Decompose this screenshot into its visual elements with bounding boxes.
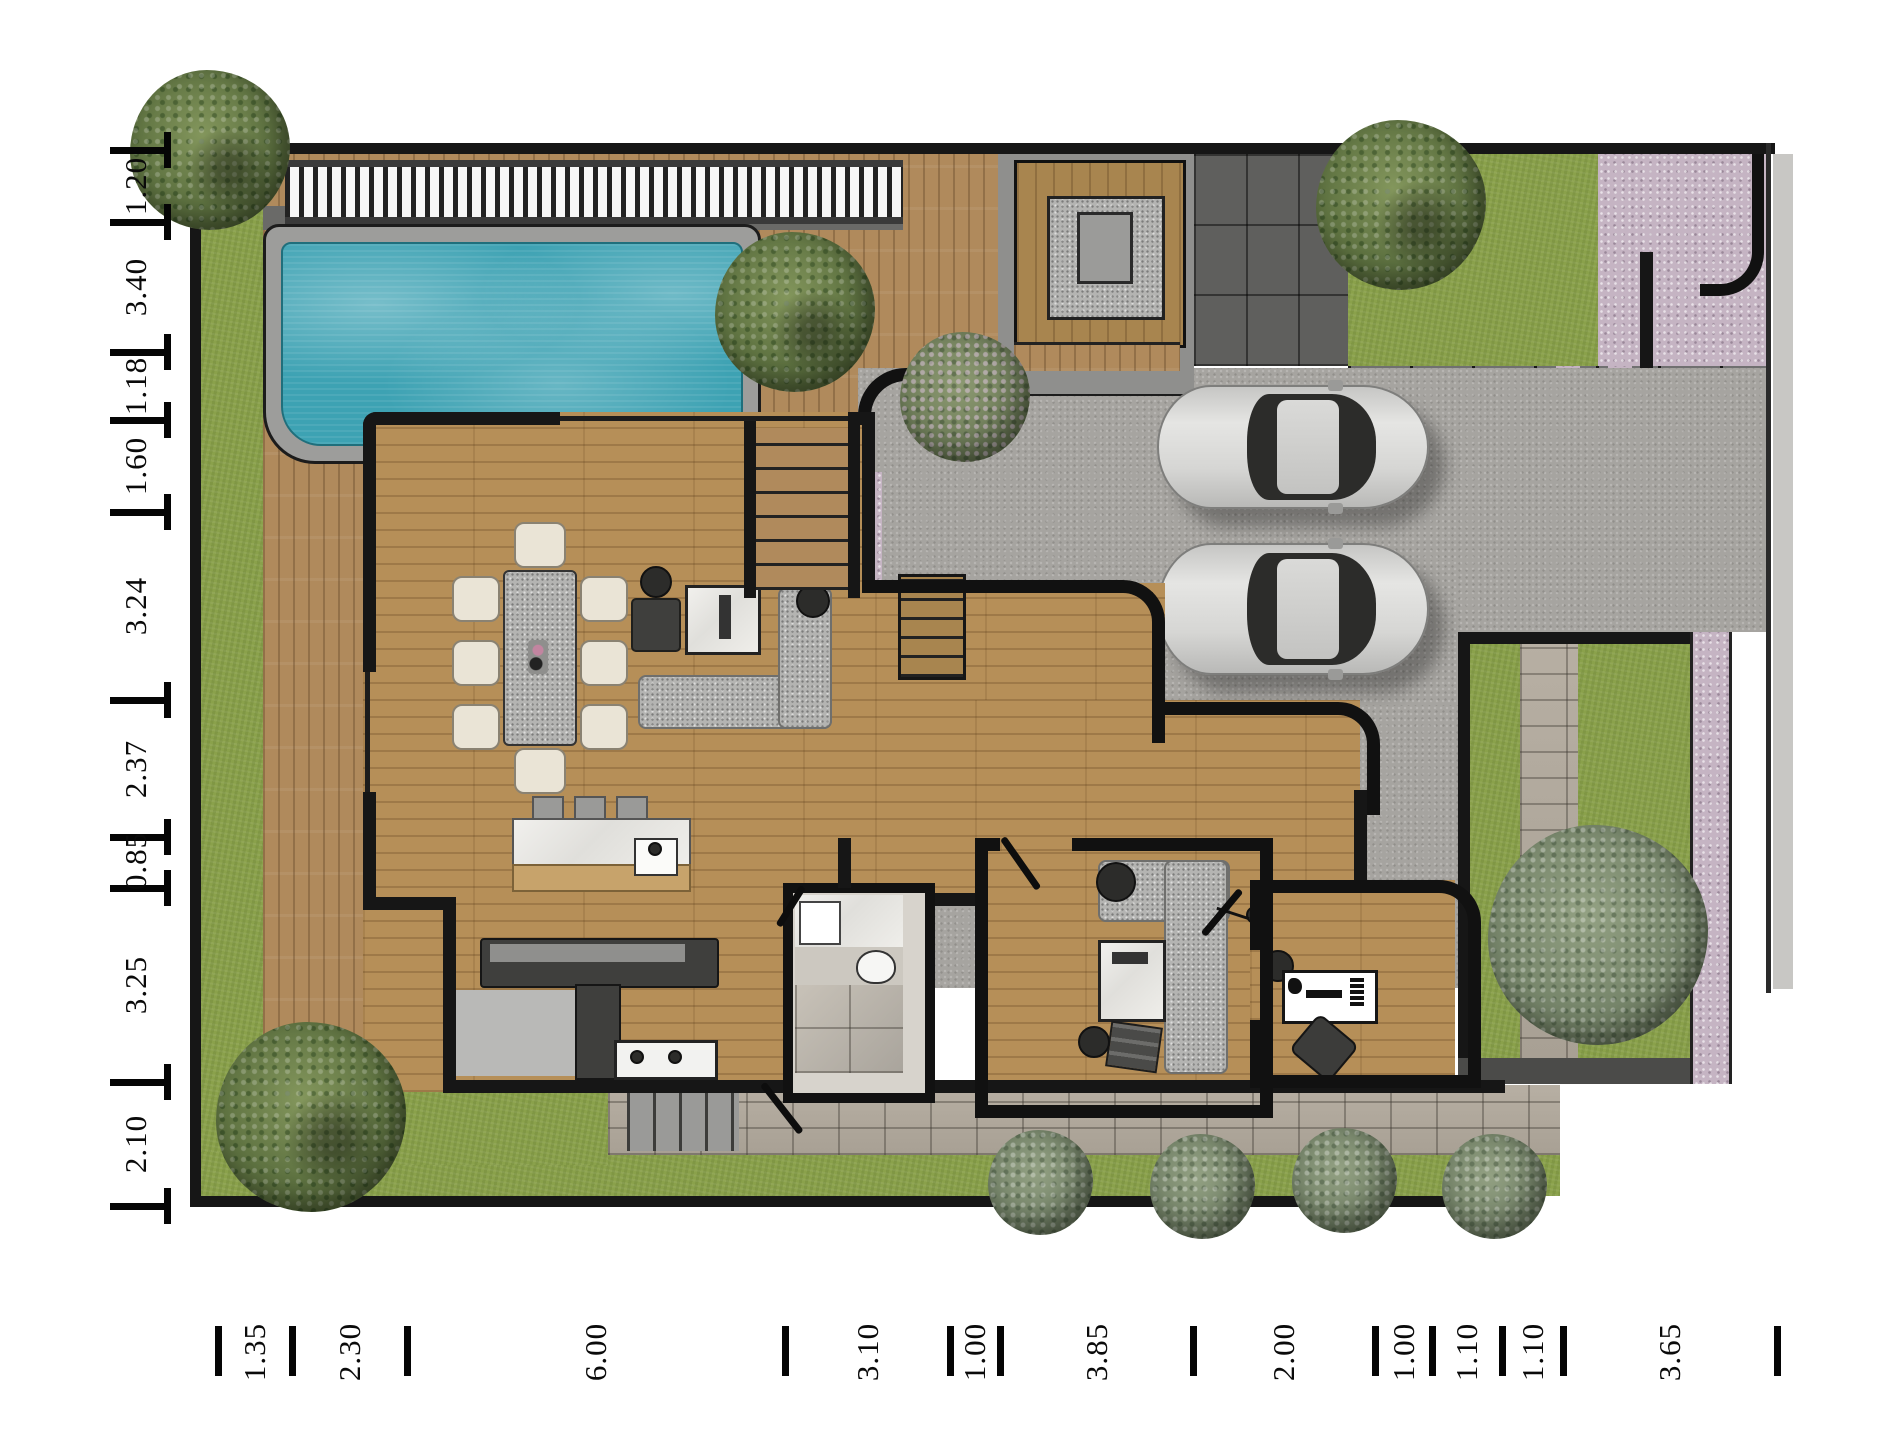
dim-tick	[110, 509, 166, 516]
dim-tick	[110, 349, 166, 356]
dim-label-bottom: 2.30	[332, 1323, 368, 1381]
dim-tick	[110, 417, 166, 424]
dim-tick	[110, 147, 166, 154]
right-garden-wall-top	[1458, 632, 1690, 644]
car-sedan-bottom	[1157, 543, 1429, 675]
dim-tick	[164, 1188, 171, 1224]
dim-label-bottom: 6.00	[578, 1323, 614, 1381]
living-window-top	[560, 416, 848, 421]
shrub-south-1	[988, 1130, 1093, 1235]
dim-tick	[1429, 1326, 1436, 1376]
dim-tick	[1774, 1326, 1781, 1376]
dim-tick	[164, 870, 171, 906]
entry-court-wall	[1700, 154, 1764, 296]
entry-stair-wall	[848, 420, 860, 598]
living-window-left	[365, 672, 370, 792]
boundary-wall-left	[190, 143, 201, 1207]
dim-tick	[110, 697, 166, 704]
dim-label-bottom: 1.00	[1386, 1323, 1422, 1381]
dim-tick	[164, 334, 171, 370]
car-sedan-top	[1157, 385, 1429, 509]
porch-steps	[627, 1093, 739, 1151]
kitchen-stool	[532, 796, 564, 820]
range-appliance	[614, 1040, 718, 1080]
shrub-south-3	[1292, 1128, 1397, 1233]
dim-label-left: 3.40	[118, 258, 154, 316]
tv-console	[631, 598, 681, 652]
slatted-fence	[285, 160, 903, 224]
shrub-south-2	[1150, 1134, 1255, 1239]
living-wall-left	[363, 412, 376, 672]
kitchen-counter-top	[490, 944, 685, 962]
step-wall-1	[862, 580, 1165, 743]
coffee-table-tray	[719, 595, 731, 639]
entry-stairs	[756, 428, 848, 590]
dining-chair	[514, 748, 566, 794]
tree-bottom-left	[216, 1022, 406, 1212]
dim-tick	[164, 204, 171, 240]
dim-label-bottom: 1.10	[1515, 1323, 1551, 1381]
living-wall-bottom-left	[363, 897, 455, 910]
dim-tick	[164, 682, 171, 718]
bath-shower-zone	[795, 985, 903, 1073]
dim-label-left: 0.85	[118, 832, 154, 890]
dim-label-bottom: 1.35	[237, 1323, 273, 1381]
dim-label-left: 1.20	[118, 157, 154, 215]
car-mirror	[1328, 380, 1343, 391]
dim-tick	[164, 132, 171, 168]
dim-tick	[1560, 1326, 1567, 1376]
car-mirror	[1328, 669, 1343, 680]
car-mirror	[1328, 538, 1343, 549]
dim-label-left: 2.10	[118, 1115, 154, 1173]
dim-label-bottom: 1.00	[957, 1323, 993, 1381]
dim-label-bottom: 3.65	[1652, 1323, 1688, 1381]
range-knob	[630, 1050, 644, 1064]
dim-label-left: 1.60	[118, 437, 154, 495]
car-roof	[1277, 400, 1339, 494]
outdoor-structure-drain	[1077, 212, 1133, 284]
car-mirror	[1328, 503, 1343, 514]
side-table-round	[640, 566, 672, 598]
step-wall-2	[1152, 702, 1380, 815]
dim-label-bottom: 2.00	[1266, 1323, 1302, 1381]
dim-tick	[997, 1326, 1004, 1376]
dining-chair	[452, 640, 500, 686]
tree-entry-flowering	[900, 332, 1030, 462]
table-centerpiece	[528, 640, 548, 674]
right-paver-strip	[1690, 632, 1732, 1084]
tree-top-right-lawn	[1316, 120, 1486, 290]
kitchen-annex-wall-left	[443, 897, 456, 1093]
tree-pool-deck	[715, 232, 875, 392]
outdoor-structure-step	[1014, 342, 1180, 371]
tree-right-garden	[1488, 825, 1708, 1045]
dim-tick	[110, 1203, 166, 1210]
dim-label-left: 3.25	[118, 956, 154, 1014]
dim-label-left: 1.18	[118, 357, 154, 415]
car-roof	[1277, 559, 1339, 659]
dim-label-left: 3.24	[118, 577, 154, 635]
kitchen-stool	[574, 796, 606, 820]
sidewalk-right	[1773, 154, 1793, 989]
dim-tick	[164, 819, 171, 855]
toilet	[856, 950, 896, 984]
dim-tick	[782, 1326, 789, 1376]
dim-tick	[1372, 1326, 1379, 1376]
dim-tick	[164, 1064, 171, 1100]
study-outer-wall	[1250, 880, 1481, 1088]
living-wall-right	[862, 412, 875, 592]
dining-chair	[580, 576, 628, 622]
bath-basin	[799, 901, 841, 945]
dim-tick	[110, 219, 166, 226]
living-wall-top	[363, 412, 560, 425]
floor-plan-canvas: 1.20 3.40 1.18 1.60 3.24 2.37 0.85 3.25 …	[0, 0, 1900, 1439]
shrub-south-4	[1442, 1134, 1547, 1239]
entry-stair-wall	[744, 420, 756, 598]
bath-entry-post	[838, 838, 851, 888]
range-knob	[668, 1050, 682, 1064]
dining-chair	[580, 640, 628, 686]
living-wall-left-lower	[363, 792, 376, 910]
dining-chair	[452, 704, 500, 750]
dim-tick	[289, 1326, 296, 1376]
dim-label-bottom: 3.10	[850, 1323, 886, 1381]
dim-tick	[215, 1326, 222, 1376]
dim-label-bottom: 3.85	[1079, 1323, 1115, 1381]
dim-tick	[404, 1326, 411, 1376]
dim-tick	[1499, 1326, 1506, 1376]
dim-label-left: 2.37	[118, 740, 154, 798]
dining-chair	[514, 522, 566, 568]
kitchen-stool	[616, 796, 648, 820]
dim-tick	[164, 402, 171, 438]
step-wall-2-stub	[1354, 790, 1367, 890]
dim-label-bottom: 1.10	[1449, 1323, 1485, 1381]
dim-tick	[110, 1079, 166, 1086]
boundary-wall-top	[190, 143, 1775, 154]
dim-tick	[164, 494, 171, 530]
dining-chair	[452, 576, 500, 622]
dim-tick	[1190, 1326, 1197, 1376]
dim-tick	[947, 1326, 954, 1376]
bedroom-walls	[975, 838, 1273, 1118]
kitchen-faucet	[648, 842, 662, 856]
boundary-line-right	[1766, 143, 1771, 993]
dining-chair	[580, 704, 628, 750]
